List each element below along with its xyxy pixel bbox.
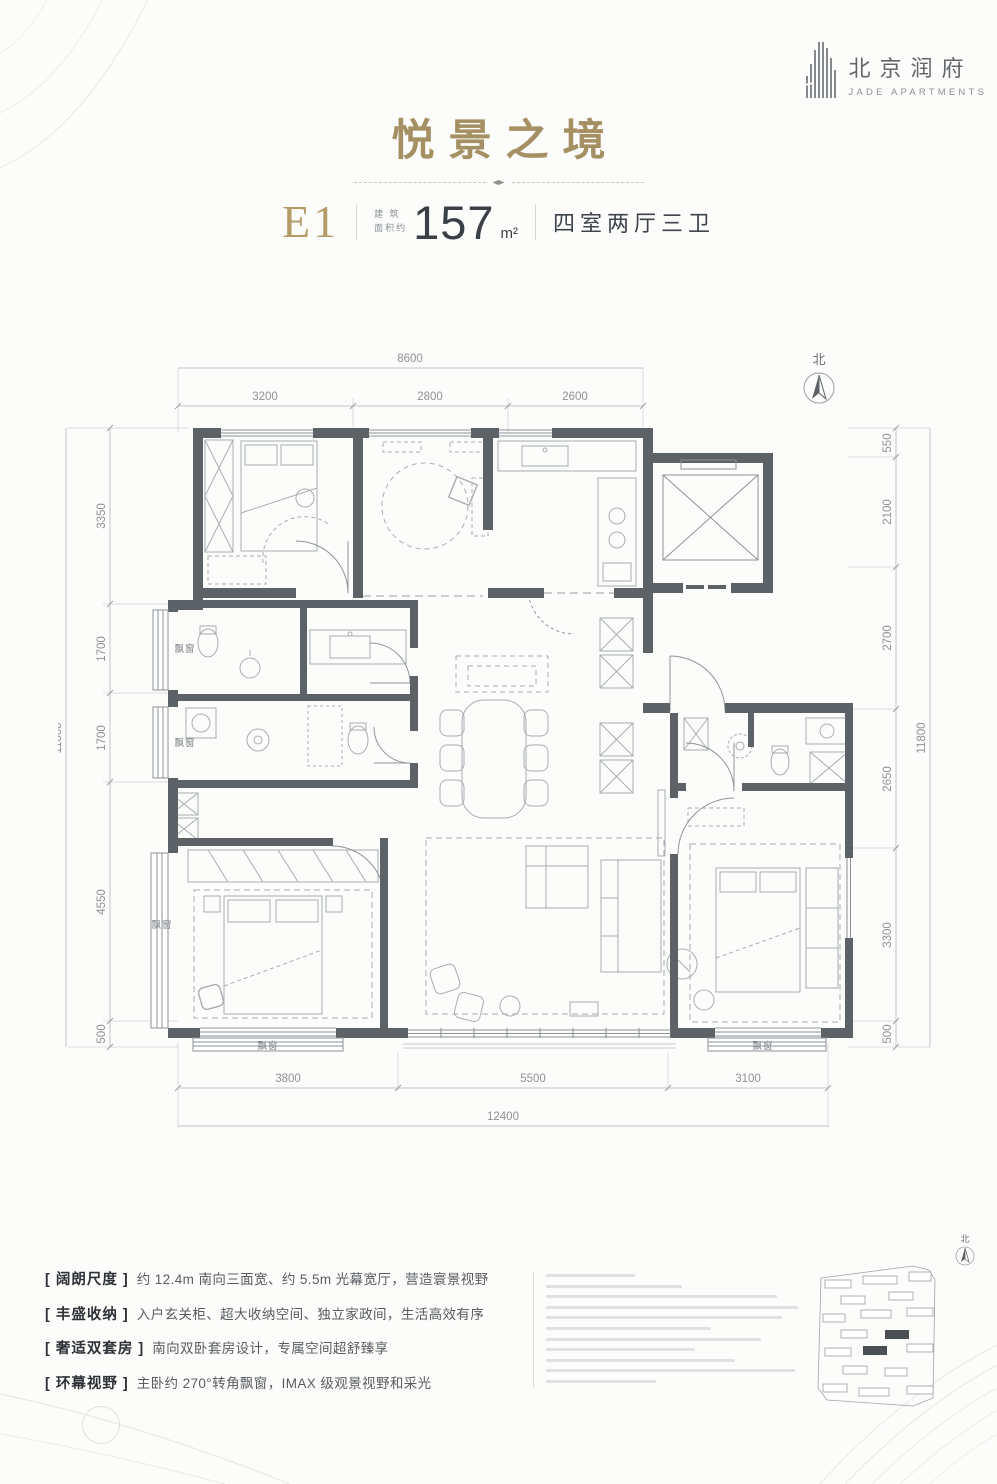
svg-text:3200: 3200 <box>252 391 278 403</box>
svg-text:飘窗: 飘窗 <box>257 1040 278 1052</box>
disclaimer-line <box>546 1348 695 1351</box>
svg-text:11800: 11800 <box>58 722 64 753</box>
svg-text:3800: 3800 <box>275 1073 301 1085</box>
site-north-indicator: 北 <box>956 1234 974 1265</box>
svg-text:500: 500 <box>882 1024 894 1043</box>
floor-plan-svg: 8600 3200 2800 2600 3800 5500 3100 12400… <box>58 338 938 1170</box>
disclaimer-line <box>546 1316 782 1319</box>
disclaimer-line <box>546 1285 682 1288</box>
brand-logo-icon <box>805 40 839 98</box>
divider-dash-right <box>512 182 644 183</box>
area-unit: m² <box>501 225 519 246</box>
svg-text:5500: 5500 <box>520 1073 546 1085</box>
unit-spec-row: E1 建 筑 面积约 157 m² 四室两厅三卫 <box>0 194 997 250</box>
svg-text:1700: 1700 <box>96 636 108 662</box>
svg-text:飘窗: 飘窗 <box>752 1040 773 1052</box>
site-buildings <box>823 1272 933 1396</box>
disclaimer-line <box>546 1274 635 1277</box>
site-plan: 北 <box>813 1230 988 1428</box>
svg-text:1700: 1700 <box>96 725 108 751</box>
unit-code: E1 <box>282 199 339 245</box>
svg-text:北: 北 <box>960 1234 969 1244</box>
svg-text:3300: 3300 <box>882 922 894 948</box>
svg-text:3100: 3100 <box>735 1073 761 1085</box>
disclaimer-line <box>546 1306 798 1309</box>
svg-text:飘窗: 飘窗 <box>174 737 195 749</box>
feature-item: [ 奢适双套房 ] 南向双卧套房设计，专属空间超舒臻享 <box>45 1337 533 1358</box>
title-divider <box>354 180 644 185</box>
svg-text:2800: 2800 <box>417 391 443 403</box>
spec-separator <box>356 204 357 240</box>
svg-text:550: 550 <box>882 433 894 452</box>
disclaimer-line <box>546 1295 777 1298</box>
svg-text:2100: 2100 <box>882 499 894 525</box>
furniture-layer <box>170 440 848 1023</box>
svg-text:11800: 11800 <box>916 722 928 753</box>
floor-plan: 8600 3200 2800 2600 3800 5500 3100 12400… <box>58 338 938 1170</box>
area-label-line1: 建 筑 <box>374 209 407 221</box>
feature-desc: 约 12.4m 南向三面宽、约 5.5m 光幕宽厅，营造寰景视野 <box>137 1268 489 1288</box>
feature-tag: [ 阔朗尺度 ] <box>45 1268 129 1289</box>
area-label: 建 筑 面积约 <box>374 209 407 234</box>
disclaimer-line <box>546 1380 656 1383</box>
svg-text:4550: 4550 <box>96 889 108 915</box>
page-title: 悦景之境 <box>0 106 997 168</box>
spec-separator <box>535 204 536 240</box>
feature-item: [ 丰盛收纳 ] 入户玄关柜、超大收纳空间、独立家政间，生活高效有序 <box>45 1303 533 1324</box>
decorative-circle <box>82 1406 120 1444</box>
poster-page: 北京润府 JADE APARTMENTS 悦景之境 E1 建 筑 面积约 157… <box>0 0 997 1484</box>
disclaimer-line <box>546 1369 795 1372</box>
unit-area: 建 筑 面积约 157 m² <box>374 199 518 246</box>
elevator-shaft <box>663 460 758 560</box>
svg-text:500: 500 <box>96 1024 108 1043</box>
feature-item: [ 阔朗尺度 ] 约 12.4m 南向三面宽、约 5.5m 光幕宽厅，营造寰景视… <box>45 1268 533 1289</box>
svg-text:3350: 3350 <box>96 503 108 529</box>
feature-desc: 入户玄关柜、超大收纳空间、独立家政间，生活高效有序 <box>137 1303 485 1323</box>
walls <box>168 428 853 1038</box>
disclaimer-line <box>546 1338 761 1341</box>
feature-desc: 南向双卧套房设计，专属空间超舒臻享 <box>152 1337 388 1357</box>
disclaimer-lines <box>546 1274 808 1391</box>
windows <box>151 430 851 1051</box>
disclaimer-line <box>546 1327 711 1330</box>
feature-tag: [ 环幕视野 ] <box>45 1372 129 1393</box>
svg-text:飘窗: 飘窗 <box>151 919 172 931</box>
feature-tag: [ 奢适双套房 ] <box>45 1337 144 1358</box>
feature-item: [ 环幕视野 ] 主卧约 270°转角飘窗，IMAX 级观景视野和采光 <box>45 1372 533 1393</box>
north-indicator: 北 <box>804 352 834 403</box>
area-value: 157 <box>413 199 494 246</box>
disclaimer-line <box>546 1359 735 1362</box>
svg-text:2650: 2650 <box>882 766 894 792</box>
svg-text:2700: 2700 <box>882 625 894 651</box>
feature-tag: [ 丰盛收纳 ] <box>45 1303 129 1324</box>
divider-diamond-icon <box>493 180 505 185</box>
site-plan-svg: 北 <box>813 1230 988 1428</box>
bay-window-labels: 飘窗 飘窗 飘窗 飘窗 飘窗 <box>151 643 773 1052</box>
feature-list: [ 阔朗尺度 ] 约 12.4m 南向三面宽、约 5.5m 光幕宽厅，营造寰景视… <box>45 1268 533 1406</box>
area-label-line2: 面积约 <box>374 223 407 235</box>
brand-name-cn: 北京润府 <box>849 51 973 83</box>
brand-name-en: JADE APARTMENTS <box>849 87 987 98</box>
site-highlighted-buildings <box>863 1330 909 1355</box>
unit-rooms: 四室两厅三卫 <box>553 206 715 238</box>
dim-ticks <box>107 403 899 1091</box>
svg-text:飘窗: 飘窗 <box>174 643 195 655</box>
svg-text:2600: 2600 <box>562 391 588 403</box>
brand-logo: 北京润府 JADE APARTMENTS <box>805 40 987 98</box>
svg-text:8600: 8600 <box>397 353 423 365</box>
footer-divider <box>533 1272 534 1388</box>
svg-text:12400: 12400 <box>487 1111 519 1123</box>
feature-desc: 主卧约 270°转角飘窗，IMAX 级观景视野和采光 <box>137 1372 432 1392</box>
divider-dash-left <box>354 182 486 183</box>
svg-text:北: 北 <box>812 352 825 367</box>
